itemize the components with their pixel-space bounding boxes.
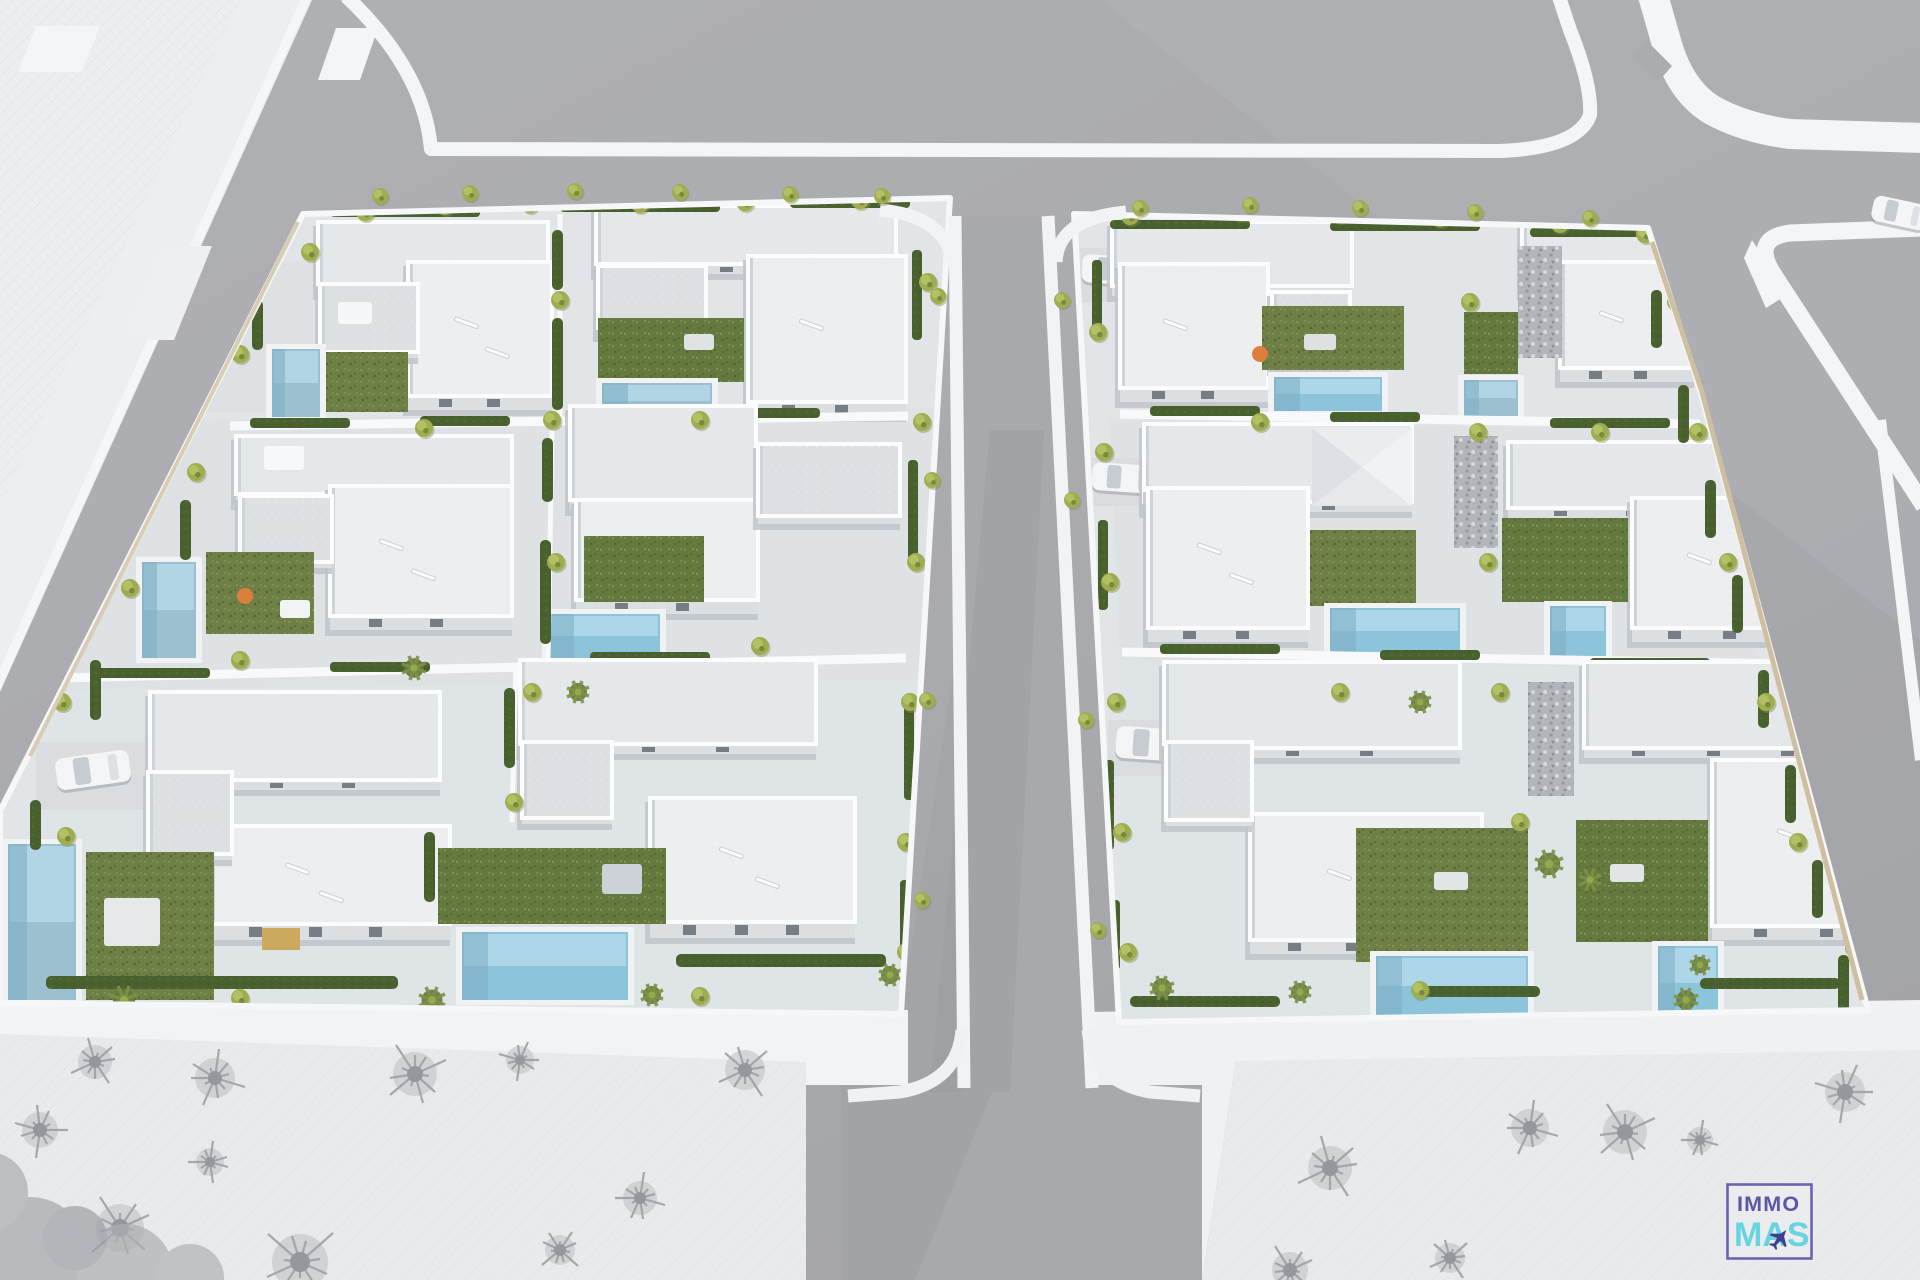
svg-text:IMMO: IMMO [1737, 1192, 1800, 1216]
